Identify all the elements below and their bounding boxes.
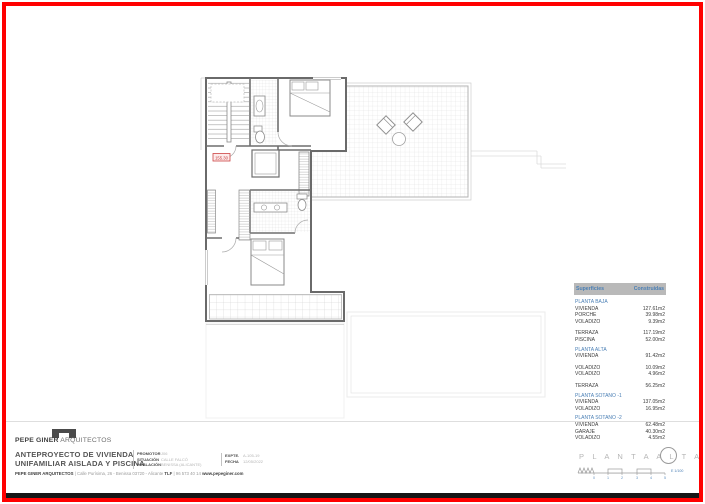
table-row: VOLADIZO16.95m2 bbox=[574, 406, 666, 413]
table-row: TERRAZA117.19m2 bbox=[574, 330, 666, 337]
level-tag: 155.30 bbox=[213, 154, 230, 162]
firm-address: PEPE GINER ARQUITECTOS | Calle Purísima,… bbox=[15, 471, 243, 476]
project-fields: PROMOTORJ06 SITUACIÓNCALLE FALCÓ POBLACI… bbox=[137, 451, 201, 468]
table-row: VOLADIZO4.55m2 bbox=[574, 435, 666, 442]
website-text: www.pepeginer.com bbox=[202, 471, 243, 476]
table-row: PLANTA BAJA bbox=[574, 299, 666, 306]
firm-name-light: ARQUITECTOS bbox=[59, 437, 112, 444]
wardrobe bbox=[208, 190, 216, 233]
round-table-icon bbox=[393, 133, 406, 146]
wardrobe bbox=[239, 190, 250, 240]
scale-label: E 1/100 bbox=[671, 469, 683, 473]
scale-tick: 4 bbox=[650, 476, 652, 480]
table-row: VIVIENDA137.05m2 bbox=[574, 399, 666, 406]
table-row: PORCHE39.98m2 bbox=[574, 312, 666, 319]
areas-col-construidas: Construidas bbox=[634, 286, 664, 292]
table-row: PISCINA52.00m2 bbox=[574, 337, 666, 344]
file-fields: EXPTE.A-105-19 FECHA12/05/2022 bbox=[225, 453, 263, 464]
bed-top bbox=[290, 80, 330, 116]
bathroom-top bbox=[251, 80, 277, 144]
project-title-line2: UNIFAMILIAR AISLADA Y PISCINA bbox=[15, 459, 145, 468]
sheet-title: P L A N T A A L T A bbox=[579, 452, 702, 461]
scale-tick: 0 bbox=[593, 476, 595, 480]
scale-tick: 2 bbox=[621, 476, 623, 480]
drawing-sheet: 155.30 Superficies Construidas PLANTA BA… bbox=[0, 0, 705, 504]
scale-tick: 3 bbox=[636, 476, 638, 480]
table-row: VIVIENDA127.61m2 bbox=[574, 306, 666, 313]
scale-bar: 0 1 2 3 4 5 bbox=[577, 466, 669, 480]
titleblock-divider bbox=[133, 450, 134, 469]
table-row: PLANTA SOTANO -1 bbox=[574, 393, 666, 400]
floor-plan-svg: 155.30 bbox=[190, 50, 580, 425]
table-row: VIVIENDA62.48m2 bbox=[574, 422, 666, 429]
table-row: VIVIENDA91.42m2 bbox=[574, 353, 666, 360]
balcony-tiles bbox=[210, 295, 342, 320]
toilet-icon bbox=[256, 131, 265, 143]
north-circle-icon bbox=[660, 447, 677, 464]
bathroom-lower bbox=[250, 190, 311, 233]
footer-black-bar bbox=[6, 493, 699, 498]
staircase bbox=[208, 82, 249, 142]
table-row: PLANTA ALTA bbox=[574, 347, 666, 354]
firm-name: PEPE GINER ARQUITECTOS bbox=[15, 437, 111, 444]
table-row: GARAJE40.30m2 bbox=[574, 429, 666, 436]
table-row: TERRAZA56.25m2 bbox=[574, 383, 666, 390]
table-row: VOLADIZO4.96m2 bbox=[574, 371, 666, 378]
table-row: VOLADIZO9.39m2 bbox=[574, 319, 666, 326]
toilet-icon bbox=[298, 200, 306, 211]
scale-tick: 5 bbox=[664, 476, 666, 480]
areas-col-superficies: Superficies bbox=[576, 286, 604, 292]
project-title: ANTEPROYECTO DE VIVIENDA UNIFAMILIAR AIS… bbox=[15, 450, 145, 468]
areas-table-header: Superficies Construidas bbox=[574, 283, 666, 295]
firm-name-bold: PEPE GINER bbox=[15, 437, 59, 444]
titleblock-separator bbox=[6, 421, 699, 422]
level-tag-text: 155.30 bbox=[215, 155, 228, 160]
scale-tick: 1 bbox=[607, 476, 609, 480]
areas-table: Superficies Construidas PLANTA BAJA VIVI… bbox=[574, 283, 666, 442]
closet bbox=[252, 150, 279, 177]
titleblock-divider bbox=[221, 453, 222, 466]
table-row: VOLADIZO10.09m2 bbox=[574, 365, 666, 372]
project-title-line1: ANTEPROYECTO DE VIVIENDA bbox=[15, 450, 145, 459]
bed-lower bbox=[251, 239, 284, 285]
